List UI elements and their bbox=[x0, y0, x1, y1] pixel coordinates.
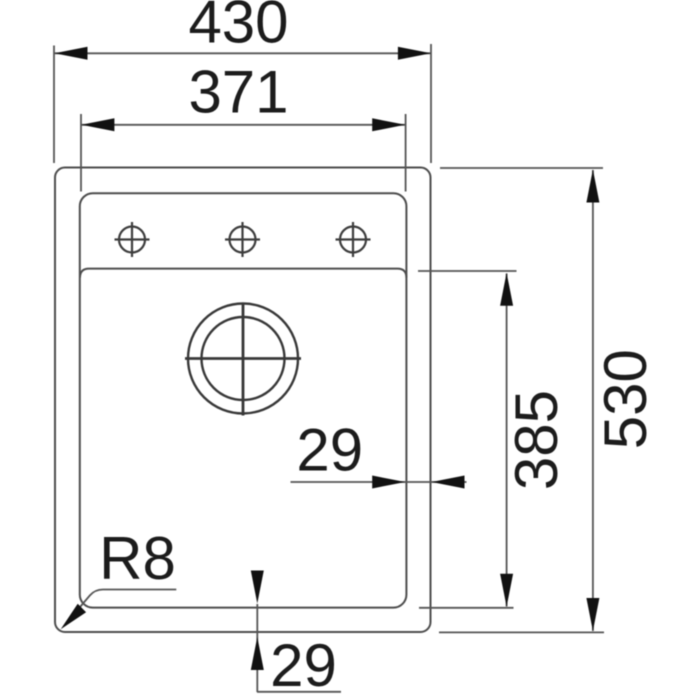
svg-text:530: 530 bbox=[592, 349, 659, 449]
svg-text:29: 29 bbox=[270, 632, 337, 699]
svg-text:371: 371 bbox=[188, 59, 288, 126]
svg-text:430: 430 bbox=[188, 0, 288, 56]
svg-text:R8: R8 bbox=[99, 525, 176, 592]
svg-text:385: 385 bbox=[503, 390, 570, 490]
svg-text:29: 29 bbox=[296, 417, 363, 484]
